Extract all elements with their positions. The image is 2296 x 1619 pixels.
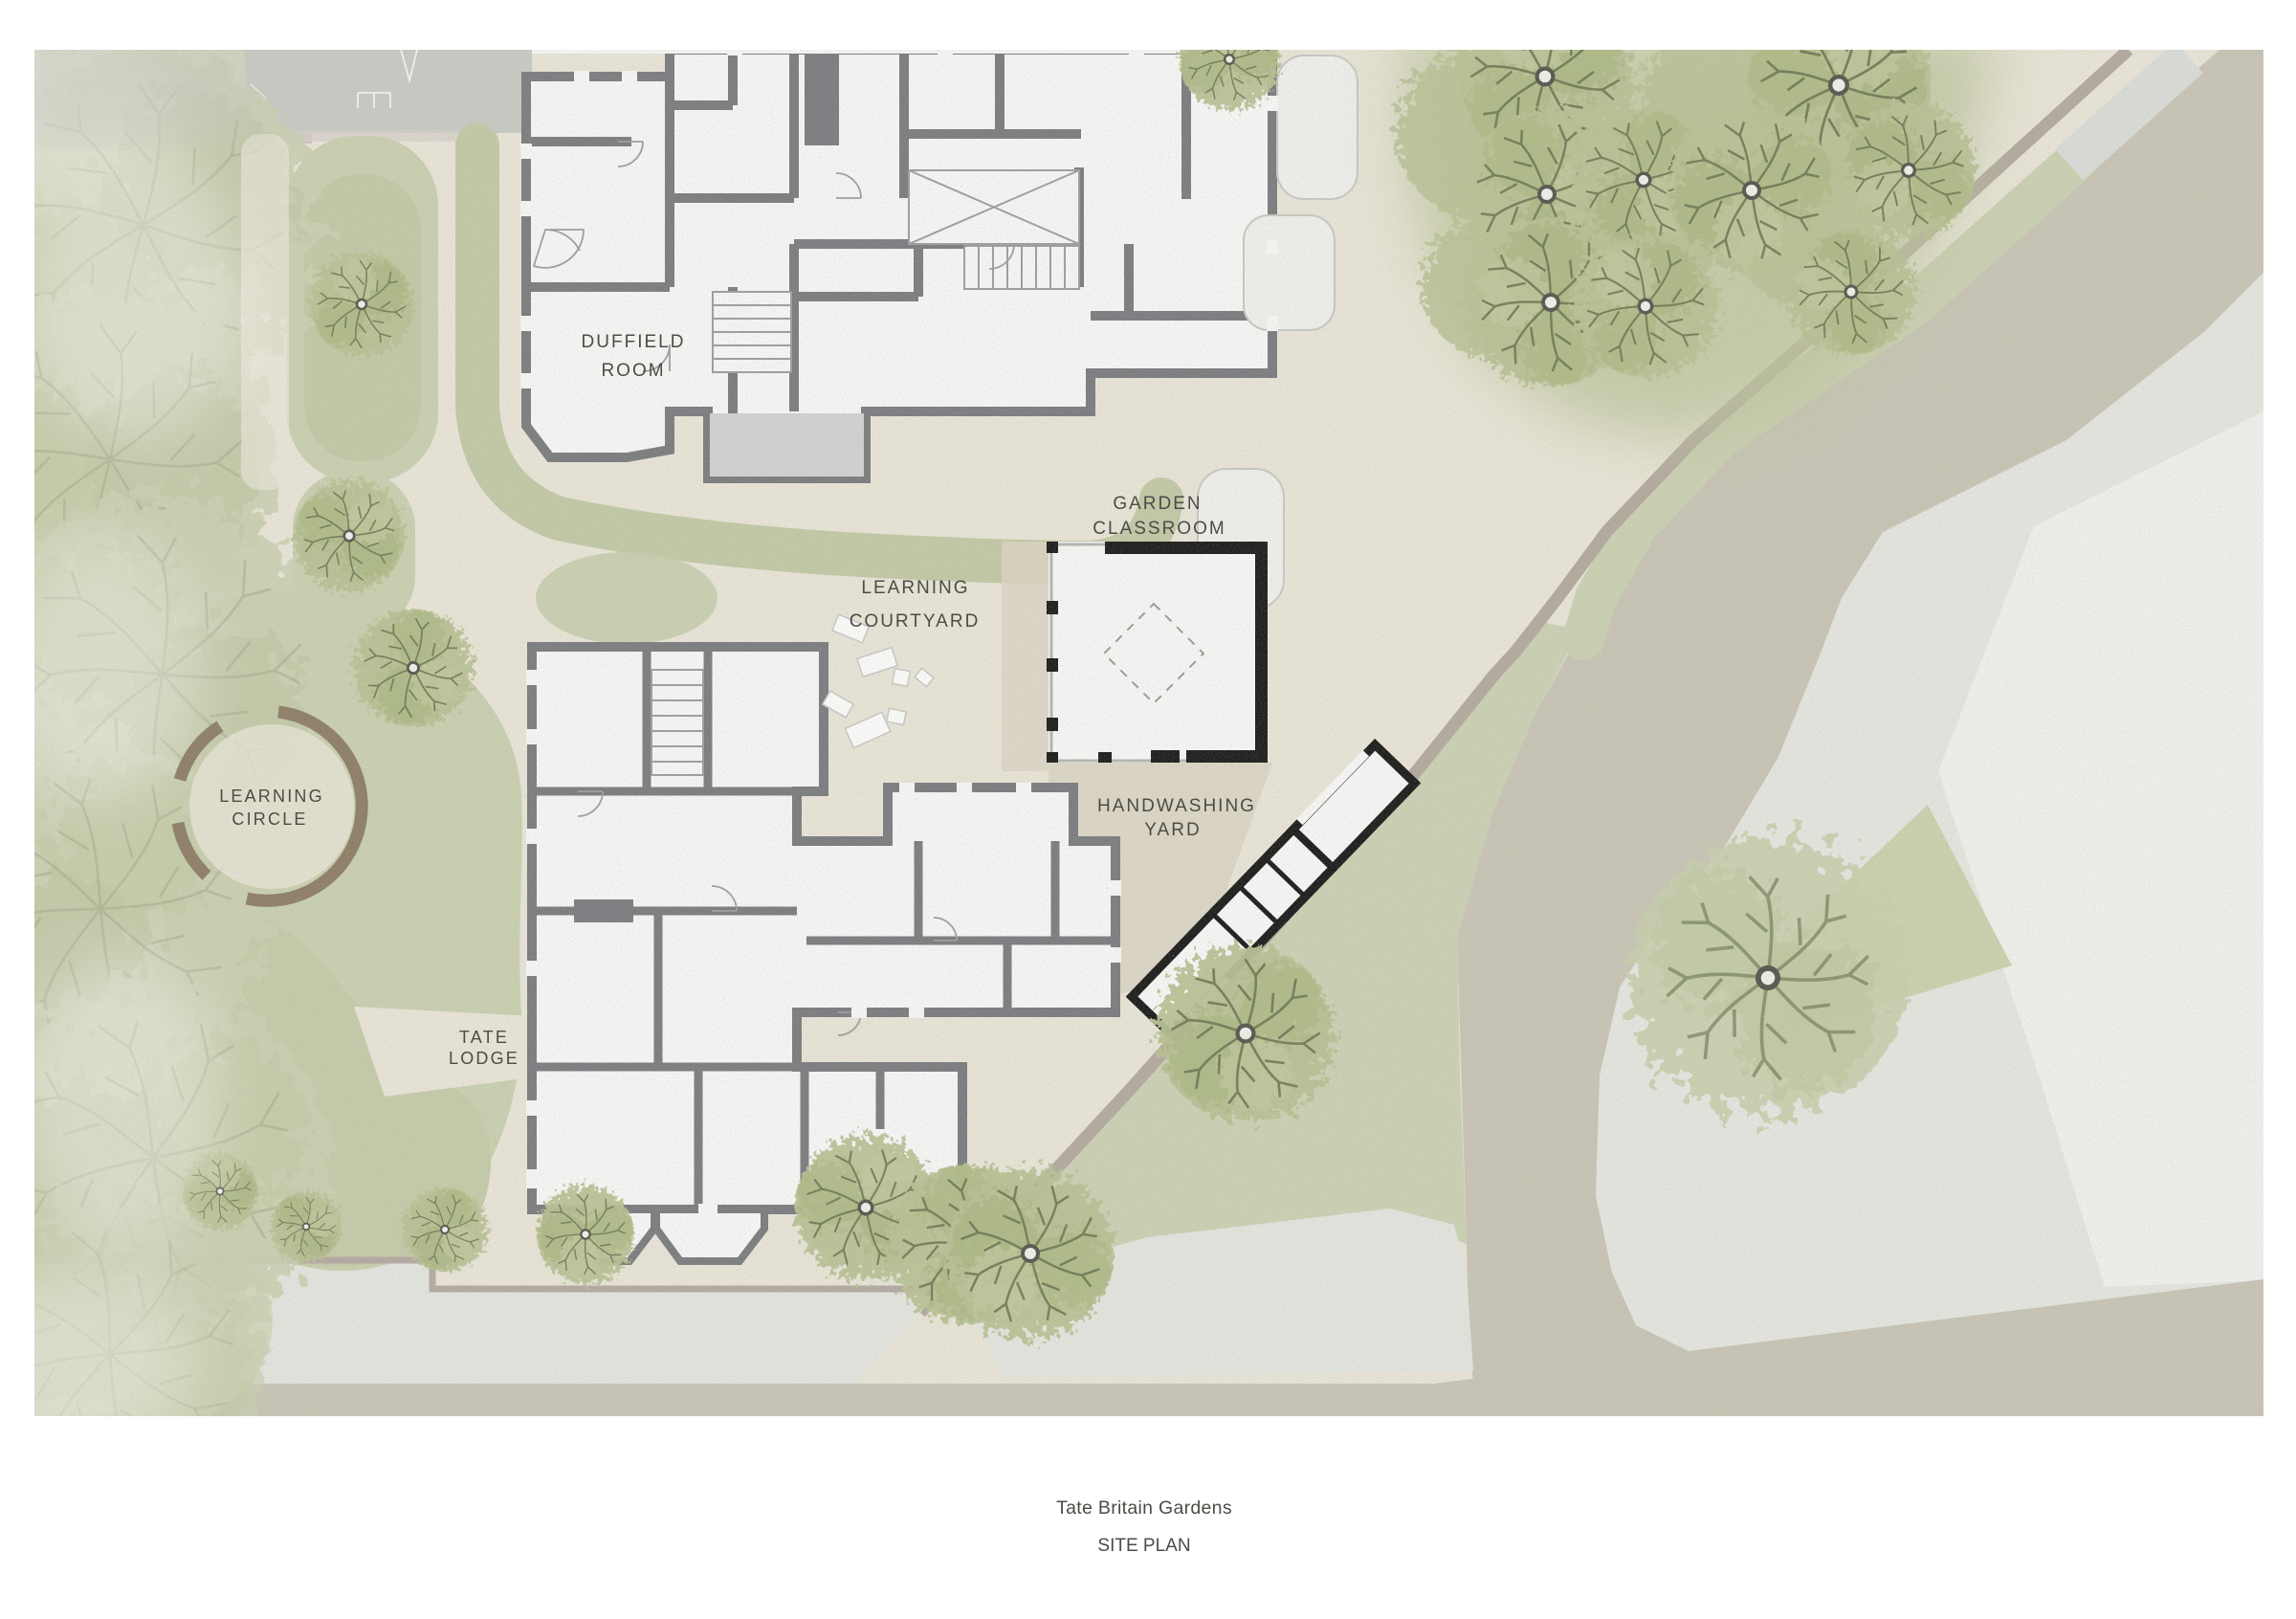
svg-text:COURTYARD: COURTYARD [850,611,981,632]
svg-text:CIRCLE: CIRCLE [232,809,307,829]
svg-text:LEARNING: LEARNING [861,578,969,598]
svg-text:DUFFIELD: DUFFIELD [582,332,686,352]
svg-text:Tate Britain Gardens: Tate Britain Gardens [1056,1497,1232,1519]
svg-text:YARD: YARD [1144,820,1201,840]
svg-text:GARDEN: GARDEN [1113,494,1202,514]
svg-text:LODGE: LODGE [449,1049,519,1068]
svg-text:TATE: TATE [459,1028,509,1047]
svg-text:CLASSROOM: CLASSROOM [1093,519,1225,539]
svg-text:HANDWASHING: HANDWASHING [1097,796,1256,816]
svg-text:LEARNING: LEARNING [219,787,324,806]
svg-text:SITE PLAN: SITE PLAN [1097,1536,1190,1556]
svg-text:ROOM: ROOM [601,361,665,381]
